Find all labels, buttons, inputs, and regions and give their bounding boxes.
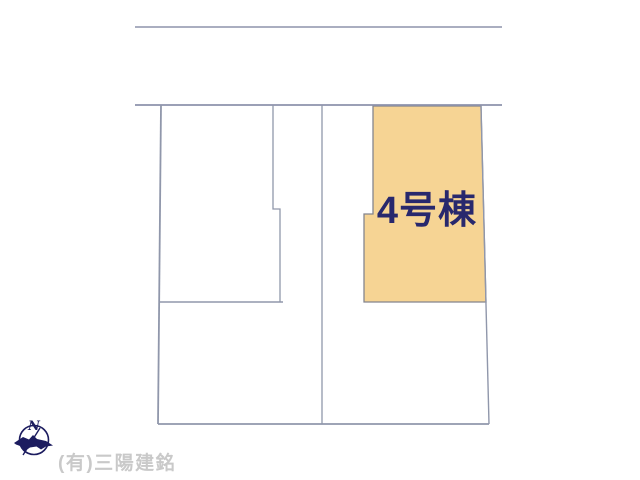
site-plan-page: 4号棟 N (有)三陽建銘 <box>0 0 640 480</box>
lot4-label: 4号棟 <box>377 190 477 232</box>
plot-left-boundary-line <box>158 105 161 424</box>
compass-icon: N <box>13 416 61 466</box>
lot1-right-divider-line <box>273 105 280 302</box>
compass-north-label: N <box>27 419 41 434</box>
company-watermark: (有)三陽建銘 <box>58 448 176 475</box>
site-plan-drawing: 4号棟 <box>0 0 640 480</box>
